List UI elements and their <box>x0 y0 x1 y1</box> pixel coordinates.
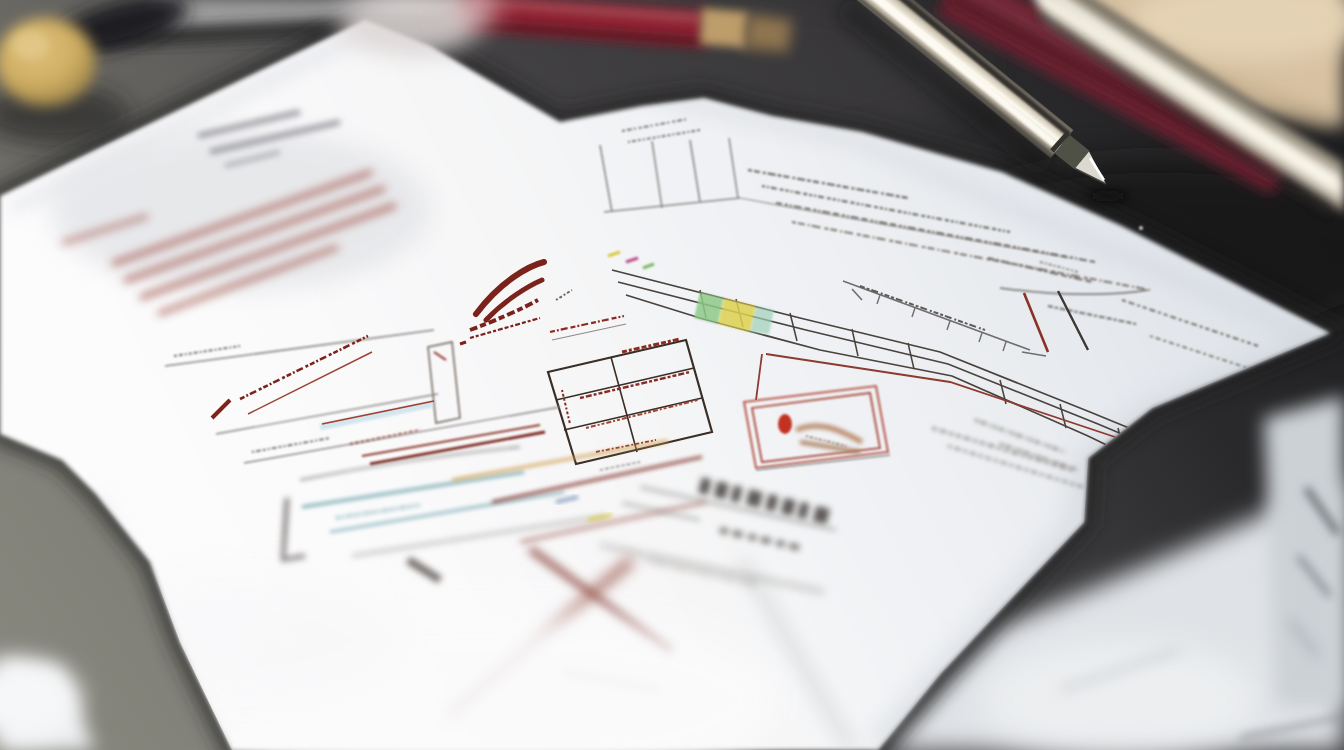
note-card-right-edge <box>1264 396 1344 706</box>
knob-highlight <box>12 31 48 59</box>
red-dot <box>778 414 792 434</box>
red-pen-gold-band <box>700 8 748 48</box>
dust-speck <box>1139 226 1143 230</box>
pen-grip <box>1062 144 1082 160</box>
upper-left-dim-patch <box>50 130 430 290</box>
knob-body <box>0 18 96 106</box>
red-pen-nose <box>744 14 792 52</box>
pen-tip-shadow <box>1088 191 1128 202</box>
scene-photo: Close-up photo of an annotated business … <box>0 0 1344 750</box>
photo-canvas: Close-up photo of an annotated business … <box>0 0 1344 750</box>
